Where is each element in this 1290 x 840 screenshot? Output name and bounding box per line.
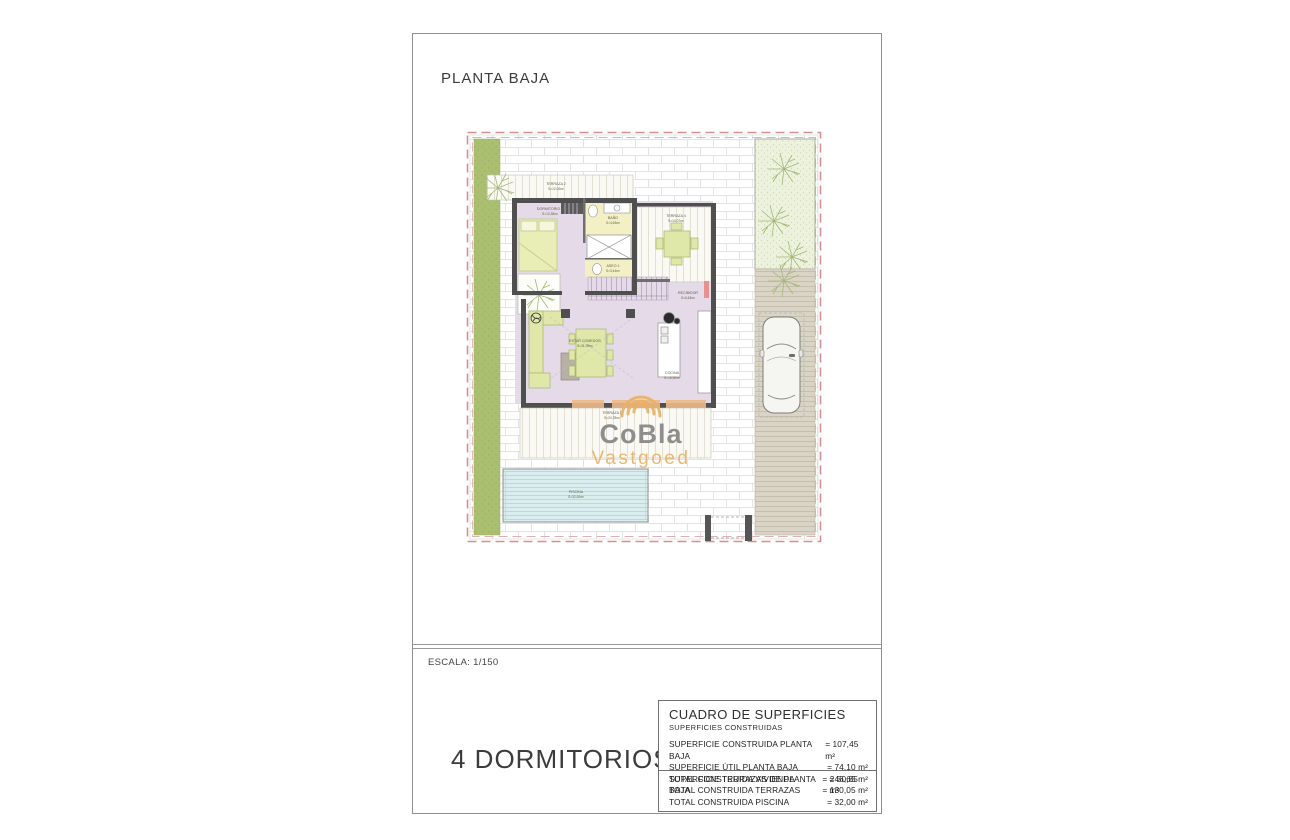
room-label: COCINA bbox=[665, 371, 680, 375]
page-title: PLANTA BAJA bbox=[441, 70, 550, 87]
wardrobe bbox=[561, 202, 583, 214]
room-area: S=32,00m² bbox=[568, 495, 584, 499]
table-row: TOTAL CONSTRUIDA PISCINA = 32,00 m² bbox=[669, 797, 868, 809]
row-value: = 32,00 m² bbox=[827, 797, 868, 809]
drawing-sheet: PLANTA BAJA bbox=[412, 33, 882, 814]
watermark-text: CoBla bbox=[599, 419, 682, 449]
room-label: TERRAZA 4 bbox=[666, 214, 686, 218]
room-label: TERRAZA 2 bbox=[546, 182, 566, 186]
aseo-toilet bbox=[593, 264, 602, 275]
row-label: TOTAL CONSTRUIDA TERRAZAS bbox=[669, 785, 800, 797]
floor-plan: TERRAZA 2 S=12,00m² DORMITORIO 1 S=13,35… bbox=[466, 131, 822, 543]
room-area: S=14,07m² bbox=[668, 219, 684, 223]
cooktop-icon bbox=[664, 313, 675, 324]
table-row: TOTAL CONSTRUIDA VIVIENDA = 246,65 m² bbox=[669, 774, 868, 786]
room-area: S=3,44m² bbox=[606, 269, 620, 273]
room-area: S=6,63m² bbox=[681, 296, 695, 300]
row-value: = 246,65 m² bbox=[822, 774, 868, 786]
titleblock-divider bbox=[413, 644, 881, 649]
room-label: TERRAZA 1 bbox=[602, 411, 622, 415]
surface-table-subtitle: SUPERFICIES CONSTRUIDAS bbox=[669, 723, 868, 732]
room-area: S=12,00m² bbox=[548, 187, 564, 191]
room-label: RECIBIDOR bbox=[678, 291, 698, 295]
car-icon bbox=[759, 313, 804, 417]
room-area: S=4,63m² bbox=[606, 221, 620, 225]
bedrooms-label: 4 DORMITORIOS bbox=[451, 744, 672, 775]
scale-label: ESCALA: 1/150 bbox=[428, 657, 498, 668]
bed bbox=[519, 219, 557, 271]
table-row: SUPERFICIE CONSTRUIDA PLANTA BAJA = 107,… bbox=[669, 739, 868, 762]
room-label: ESTAR COMEDOR bbox=[569, 339, 601, 343]
surface-table-title: CUADRO DE SUPERFICIES bbox=[669, 707, 868, 722]
watermark-subtext: Vastgoed bbox=[592, 448, 691, 469]
row-label: TOTAL CONSTRUIDA PISCINA bbox=[669, 797, 789, 809]
row-label: TOTAL CONSTRUIDA VIVIENDA bbox=[669, 774, 795, 786]
room-area: S=16,50m² bbox=[664, 376, 680, 380]
aseo-floor bbox=[585, 259, 632, 277]
row-label: SUPERFICIE CONSTRUIDA PLANTA BAJA bbox=[669, 739, 825, 762]
surface-table: CUADRO DE SUPERFICIES SUPERFICIES CONSTR… bbox=[658, 700, 877, 812]
room-area: S=13,35m² bbox=[542, 212, 558, 216]
planting-bed bbox=[755, 139, 815, 273]
room-label: DORMITORIO 1 bbox=[537, 207, 563, 211]
room-label: BAÑO bbox=[608, 215, 618, 220]
row-value: = 107,45 m² bbox=[825, 739, 868, 762]
room-area: S=31,09m² bbox=[577, 344, 593, 348]
screenshot-root: PLANTA BAJA bbox=[0, 0, 1290, 840]
room-label: ASEO 1 bbox=[607, 264, 620, 268]
shower-box bbox=[587, 235, 631, 259]
table-row: TOTAL CONSTRUIDA TERRAZAS = 130,05 m² bbox=[669, 785, 868, 797]
entrance-door bbox=[704, 281, 709, 298]
surface-totals: TOTAL CONSTRUIDA VIVIENDA = 246,65 m² TO… bbox=[659, 770, 876, 812]
room-label: PISCINA bbox=[569, 490, 584, 494]
row-value: = 130,05 m² bbox=[822, 785, 868, 797]
